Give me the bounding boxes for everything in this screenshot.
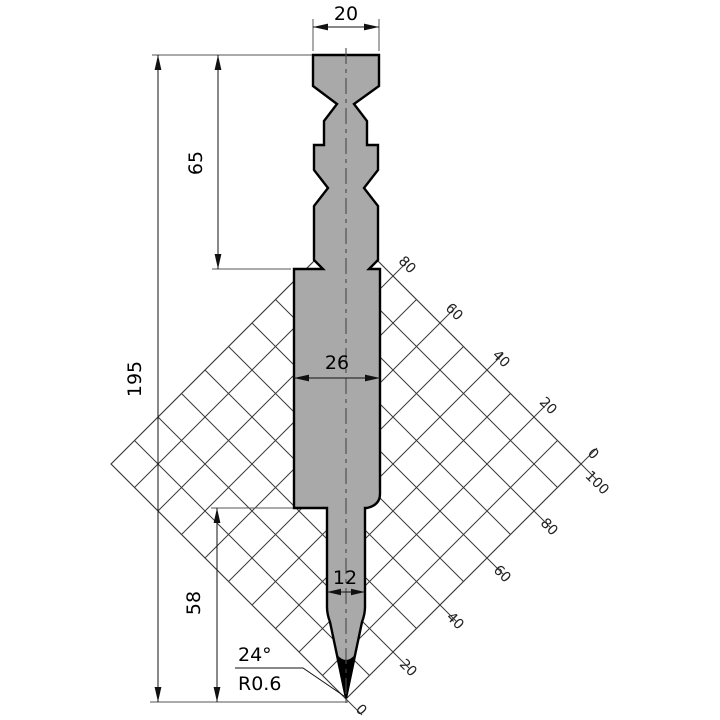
dim-58-label: 58 xyxy=(183,591,205,615)
dim-20-label: 20 xyxy=(334,3,358,25)
grid-label: 20 xyxy=(536,394,560,418)
grid-label: 40 xyxy=(443,609,467,633)
dim-12-label: 12 xyxy=(333,567,357,589)
grid-label: 80 xyxy=(395,253,419,277)
grid-label: 60 xyxy=(490,562,514,586)
dimension-top-width: 20 xyxy=(313,3,379,51)
tip-radius-label: R0.6 xyxy=(238,673,281,695)
dim-26-label: 26 xyxy=(325,352,349,374)
grid-label: 60 xyxy=(442,300,466,324)
grid-label: 80 xyxy=(537,515,561,539)
grid-label: 100 xyxy=(582,468,612,498)
tip-angle-label: 24° xyxy=(238,644,272,666)
grid-label: 20 xyxy=(396,656,420,680)
dimension-shank-height: 65 xyxy=(185,55,291,269)
dim-195-label: 195 xyxy=(124,361,146,397)
technical-drawing: 20 195 65 58 26 12 xyxy=(0,0,720,720)
grid-label: 40 xyxy=(489,347,513,371)
dim-65-label: 65 xyxy=(185,151,207,175)
grid-label: 0 xyxy=(352,701,370,719)
grid-label: 0 xyxy=(584,445,602,463)
